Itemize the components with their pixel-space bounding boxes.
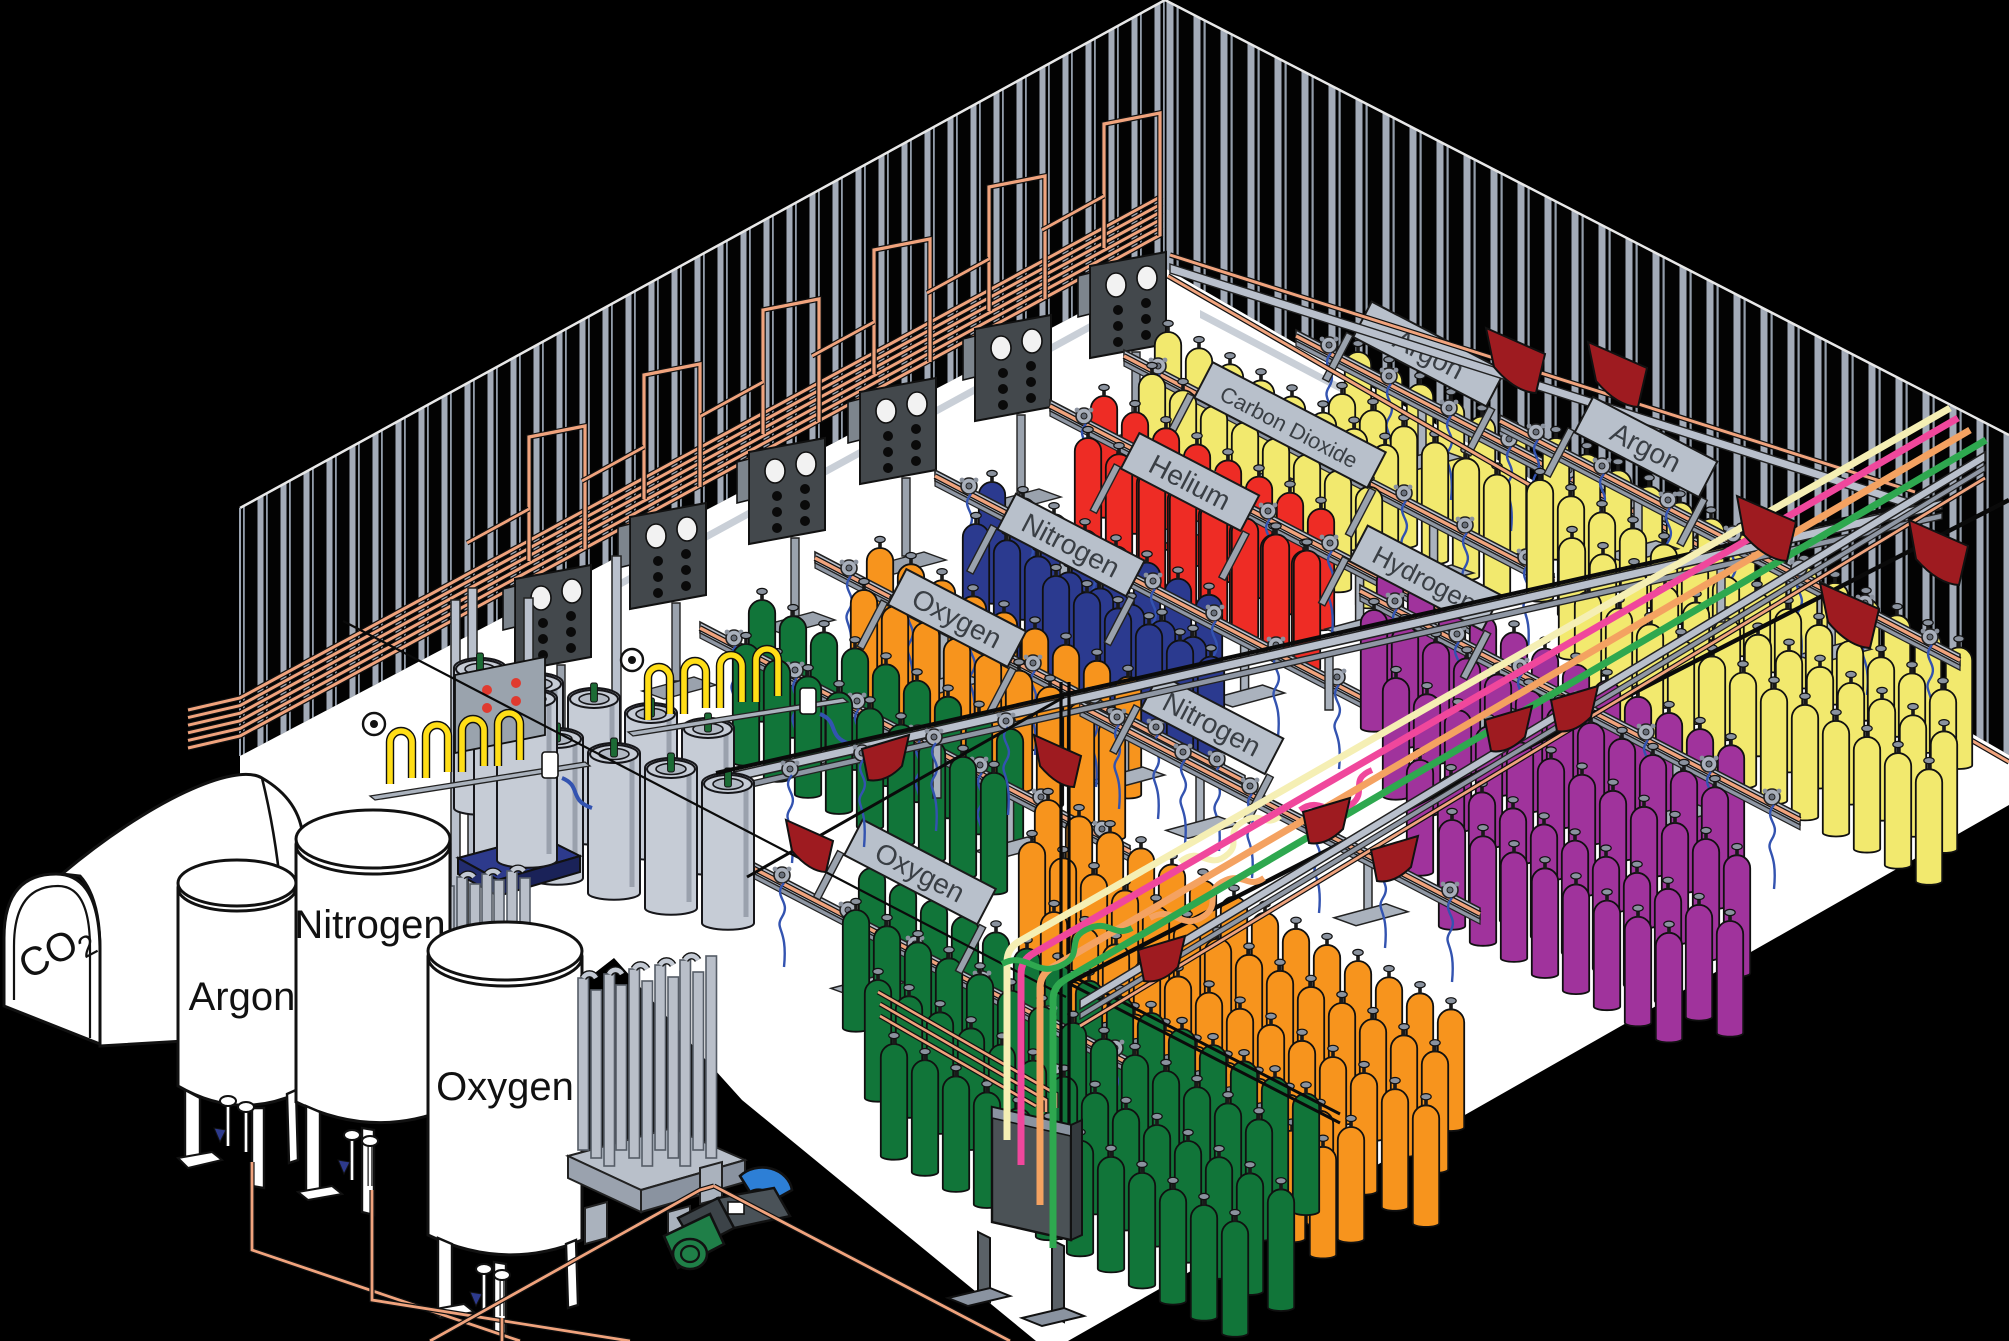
svg-text:Nitrogen: Nitrogen: [294, 903, 445, 947]
svg-text:Argon: Argon: [189, 975, 296, 1019]
svg-text:Oxygen: Oxygen: [436, 1065, 574, 1109]
